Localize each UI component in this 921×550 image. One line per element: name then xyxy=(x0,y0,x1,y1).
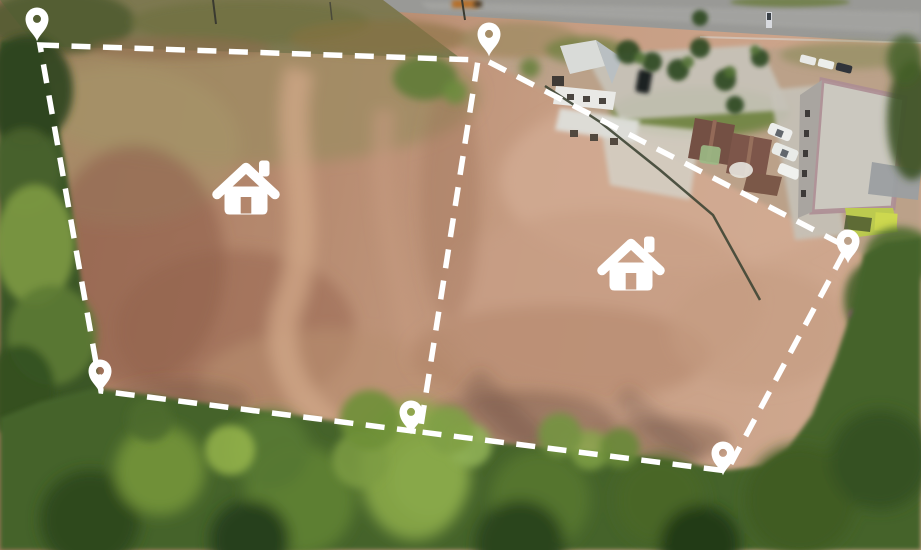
aerial-photo xyxy=(0,0,921,550)
photo-background xyxy=(0,0,921,550)
aerial-photo-canvas xyxy=(0,0,921,550)
green-canopy-tent xyxy=(699,145,721,166)
